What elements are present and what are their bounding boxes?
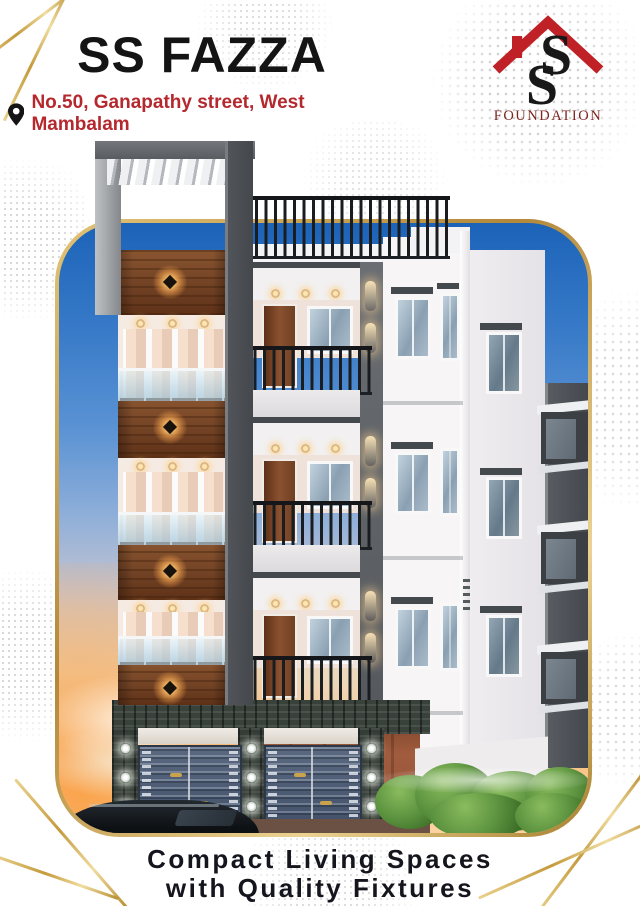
tagline: Compact Living Spaces with Quality Fixtu… [0, 845, 640, 903]
rf-slim-window3 [440, 603, 460, 671]
floor3-downlight-3 [331, 599, 340, 608]
tb3-glass-railing [118, 636, 228, 665]
tb2-light-3 [200, 462, 209, 471]
tagline-line1: Compact Living Spaces [0, 845, 640, 874]
pillar1-light-1 [120, 743, 131, 754]
rf-window3 [395, 607, 431, 669]
rs-window1-lintel [480, 323, 522, 330]
bushes [375, 763, 588, 833]
rs-window1 [486, 332, 522, 394]
address-line: No.50, Ganapathy street, West Mambalam [8, 92, 396, 136]
logo-name: FOUNDATION [478, 108, 618, 125]
foundation-logo: S S FOUNDATION [478, 8, 618, 130]
house-roof-icon: S S [478, 8, 618, 108]
gate-right-hinge-2 [320, 801, 332, 805]
rf-window1-lintel [391, 287, 433, 294]
floor3-balcony-railing [244, 656, 372, 705]
pillar2-light-1 [246, 743, 257, 754]
wing-balcony2-glass [546, 539, 576, 579]
logo-monogram-s2: S [526, 52, 558, 108]
car-roof-highlight [89, 804, 219, 807]
floor2-downlight-3 [331, 444, 340, 453]
rf-slim-window-lintel [437, 283, 459, 289]
gate-right-hinge-1 [294, 773, 306, 777]
gate-left-hinge-1 [170, 773, 182, 777]
floor3-downlight-1 [271, 599, 280, 608]
tagline-line2: with Quality Fixtures [0, 874, 640, 903]
right-front-pilaster [460, 231, 470, 783]
rf-window3-lintel [391, 597, 433, 604]
pillar3-light-1 [366, 743, 377, 754]
floor1-downlight-2 [301, 289, 310, 298]
wood-wall-lamp-1 [152, 264, 188, 300]
rs-window3-lintel [480, 606, 522, 613]
tb1-light-3 [200, 319, 209, 328]
wood-wall-lamp-3 [152, 553, 188, 589]
wall-sconce-3 [365, 436, 376, 466]
page-title: SS FAZZA [20, 26, 384, 84]
terrace-railing [236, 196, 450, 259]
flyer-page: SS FAZZA No.50, Ganapathy street, West M… [0, 0, 640, 906]
floor3-downlight-2 [301, 599, 310, 608]
tower-right-column [225, 141, 253, 705]
bush-6 [515, 793, 588, 833]
tb2-glass-railing [118, 512, 228, 545]
rf-window1 [395, 297, 431, 359]
tb1-light-1 [136, 319, 145, 328]
wing-balcony3-glass [546, 659, 576, 699]
rs-window3 [486, 615, 522, 677]
tower-balcony-3 [118, 600, 228, 662]
floor2-downlight-2 [301, 444, 310, 453]
pillar1-light-2 [120, 772, 131, 783]
pillar2-light-2 [246, 772, 257, 783]
right-front-slabline-2 [383, 556, 463, 560]
wing-balcony1-glass [546, 419, 576, 459]
wall-sconce-5 [365, 591, 376, 621]
rf-slim-window1 [440, 293, 460, 361]
floor1-downlight-1 [271, 289, 280, 298]
floor1-slab [253, 390, 360, 417]
tower-balcony-2 [118, 458, 228, 542]
wall-sconce-1 [365, 281, 376, 311]
right-front-slabline-1 [383, 401, 463, 405]
rf-window2-lintel [391, 442, 433, 449]
pillar2-light-3 [246, 801, 257, 812]
floor2-downlight-1 [271, 444, 280, 453]
tb2-light-2 [168, 462, 177, 471]
wood-wall-lamp-2 [152, 409, 188, 445]
floor1-balcony-railing [244, 346, 372, 395]
floor2-slab [253, 545, 360, 572]
rf-window2 [395, 452, 431, 514]
address-text: No.50, Ganapathy street, West Mambalam [31, 92, 396, 136]
location-pin-icon [8, 103, 24, 126]
rs-window2-lintel [480, 468, 522, 475]
floor1-downlight-3 [331, 289, 340, 298]
floor2-balcony-railing [244, 501, 372, 550]
wood-wall-lamp-4 [152, 670, 188, 706]
car-windshield [174, 810, 237, 826]
tb2-light-1 [136, 462, 145, 471]
rs-window2 [486, 477, 522, 539]
bush-mist [375, 767, 588, 793]
tower-balcony-1 [118, 315, 228, 398]
tb1-light-2 [168, 319, 177, 328]
tb1-glass-railing [118, 368, 228, 401]
dots-cluster-right-mid [585, 250, 640, 550]
rf-slim-window2 [440, 448, 460, 516]
